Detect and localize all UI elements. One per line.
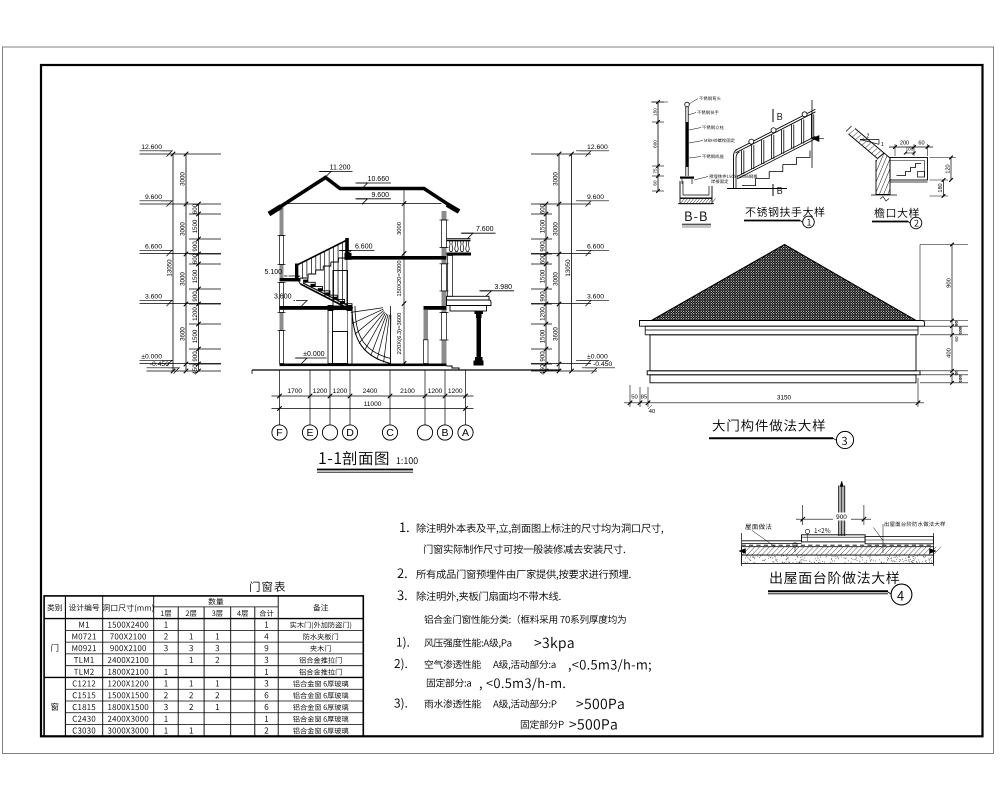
svg-text:60: 60	[954, 336, 959, 342]
svg-text:60: 60	[954, 321, 959, 327]
svg-text:60: 60	[653, 180, 658, 186]
svg-text:3000: 3000	[397, 222, 403, 235]
svg-text:D: D	[346, 427, 354, 439]
svg-text:1500: 1500	[540, 219, 547, 233]
svg-text:1700: 1700	[287, 388, 302, 395]
svg-text:9.600: 9.600	[145, 194, 162, 201]
svg-text:900: 900	[540, 351, 547, 362]
svg-text:1500: 1500	[192, 219, 199, 233]
svg-text:3000: 3000	[180, 172, 187, 186]
svg-text:3000: 3000	[180, 222, 187, 236]
svg-text:13050: 13050	[565, 259, 572, 277]
svg-text:3000: 3000	[553, 272, 560, 286]
svg-text:60: 60	[954, 370, 959, 376]
svg-text:75: 75	[653, 168, 658, 174]
svg-text:9.600: 9.600	[371, 192, 389, 199]
svg-text:100: 100	[906, 146, 914, 151]
svg-text:3.600: 3.600	[274, 294, 292, 301]
svg-text:3600: 3600	[553, 327, 560, 341]
svg-text:-0.450: -0.450	[150, 361, 169, 368]
svg-text:85: 85	[641, 395, 647, 401]
svg-text:900: 900	[192, 291, 199, 302]
svg-text:400: 400	[947, 348, 953, 358]
svg-text:2: 2	[867, 134, 870, 140]
svg-text:12.600: 12.600	[587, 144, 608, 151]
svg-text:6.600: 6.600	[587, 244, 604, 251]
svg-text:1500: 1500	[192, 329, 199, 343]
svg-text:1200: 1200	[448, 388, 463, 395]
svg-text:120: 120	[946, 164, 952, 173]
svg-text:3000: 3000	[180, 272, 187, 286]
svg-text:7.600: 7.600	[476, 226, 494, 233]
svg-text:900: 900	[192, 241, 199, 252]
svg-text:±0.000: ±0.000	[587, 354, 608, 361]
svg-text:900: 900	[192, 351, 199, 362]
svg-text:2100: 2100	[400, 388, 415, 395]
svg-text:11.200: 11.200	[330, 165, 351, 172]
svg-text:6.600: 6.600	[145, 244, 162, 251]
svg-text:1500: 1500	[192, 269, 199, 283]
svg-text:B: B	[441, 427, 448, 439]
svg-text:10.660: 10.660	[368, 176, 390, 183]
svg-text:3600: 3600	[180, 327, 187, 341]
svg-text:50: 50	[631, 395, 637, 401]
svg-text:40: 40	[649, 409, 655, 415]
svg-text:3.600: 3.600	[145, 294, 162, 301]
svg-text:3000: 3000	[553, 222, 560, 236]
svg-text:600: 600	[653, 140, 658, 148]
svg-text:±0.000: ±0.000	[141, 354, 162, 361]
svg-text:3000: 3000	[553, 172, 560, 186]
svg-text:3.600: 3.600	[587, 294, 604, 301]
svg-text:450: 450	[540, 364, 547, 375]
svg-text:900: 900	[836, 514, 847, 521]
svg-text:900: 900	[540, 241, 547, 252]
svg-text:13050: 13050	[167, 259, 174, 277]
svg-text:450: 450	[192, 364, 199, 375]
svg-text:900: 900	[540, 291, 547, 302]
svg-text:1200: 1200	[313, 388, 328, 395]
svg-text:220X(6.3)=3600: 220X(6.3)=3600	[397, 313, 403, 355]
svg-text:1200: 1200	[192, 307, 199, 321]
svg-text:600: 600	[192, 203, 199, 214]
svg-text:F: F	[276, 427, 282, 439]
svg-text:1500: 1500	[540, 329, 547, 343]
svg-text:9.600: 9.600	[587, 194, 604, 201]
svg-text:600: 600	[192, 253, 199, 264]
svg-text:180: 180	[938, 183, 944, 192]
svg-text:E: E	[306, 427, 313, 439]
svg-text:3.980: 3.980	[494, 284, 512, 291]
svg-text:11000: 11000	[364, 401, 382, 408]
svg-text:1: 1	[881, 142, 884, 148]
svg-text:150X20=3000: 150X20=3000	[397, 260, 403, 296]
svg-text:100: 100	[958, 375, 963, 383]
svg-text:6.600: 6.600	[355, 244, 373, 251]
svg-text:100: 100	[958, 326, 963, 334]
svg-text:-0.450: -0.450	[593, 361, 612, 368]
svg-text:150: 150	[653, 108, 658, 116]
svg-text:3150: 3150	[777, 395, 792, 402]
svg-text:A: A	[462, 427, 469, 439]
svg-text:900: 900	[947, 278, 953, 288]
svg-text:600: 600	[540, 203, 547, 214]
svg-text:1200: 1200	[540, 307, 547, 321]
svg-text:2400: 2400	[363, 388, 378, 395]
svg-text:1200: 1200	[333, 388, 348, 395]
svg-text:±0.000: ±0.000	[303, 351, 324, 358]
svg-text:600: 600	[540, 253, 547, 264]
svg-text:C: C	[386, 427, 394, 439]
svg-text:60: 60	[918, 141, 924, 147]
svg-text:5.100: 5.100	[264, 269, 282, 276]
svg-text:1200: 1200	[428, 388, 443, 395]
svg-text:12.600: 12.600	[141, 144, 162, 151]
svg-text:1500: 1500	[540, 269, 547, 283]
